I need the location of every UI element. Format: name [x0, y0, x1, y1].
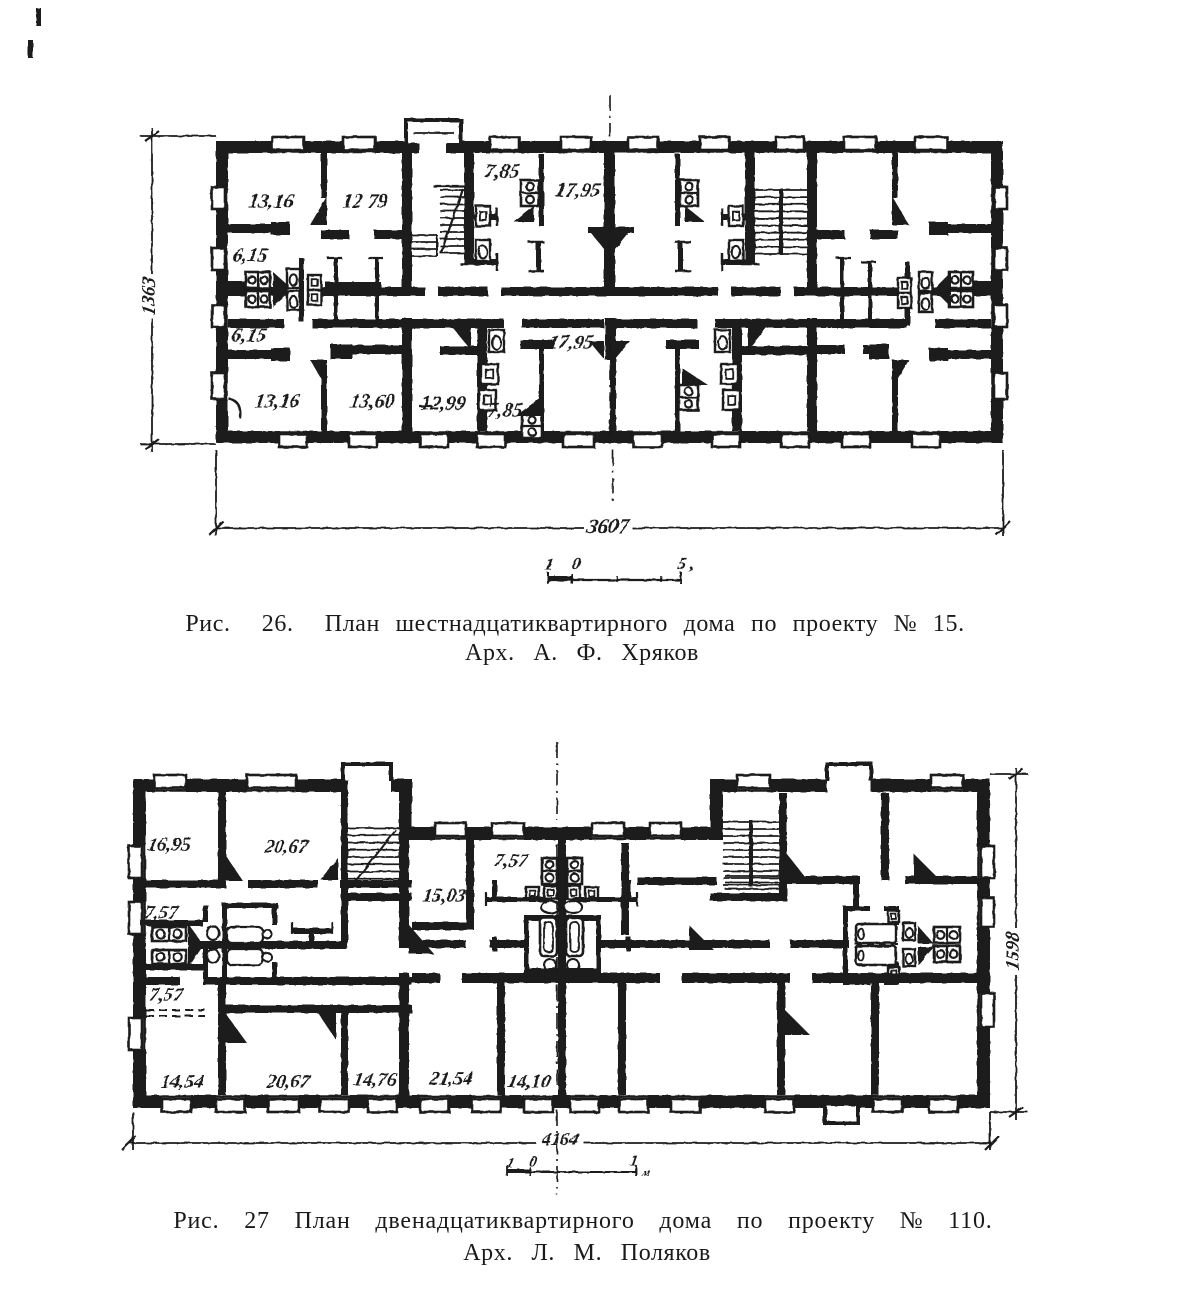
svg-text:21,54: 21,54 [427, 1068, 474, 1089]
svg-text:1: 1 [543, 555, 555, 574]
svg-text:0: 0 [570, 554, 582, 573]
svg-text:6,15: 6,15 [230, 325, 269, 347]
svg-text:14,10: 14,10 [506, 1071, 553, 1092]
svg-text:13,60: 13,60 [348, 391, 397, 413]
svg-text:м: м [640, 1165, 652, 1179]
svg-text:0: 0 [528, 1155, 539, 1171]
svg-text:15,03: 15,03 [421, 885, 468, 906]
svg-text:20,67: 20,67 [262, 836, 311, 857]
svg-text:12 79: 12 79 [341, 191, 390, 213]
svg-text:12,99: 12,99 [419, 393, 468, 415]
svg-text:14,54: 14,54 [159, 1071, 205, 1092]
svg-text:17,95: 17,95 [554, 180, 603, 202]
svg-text:14,76: 14,76 [352, 1069, 399, 1090]
svg-text:1: 1 [629, 1154, 639, 1170]
svg-text:1598: 1598 [1002, 930, 1023, 972]
svg-text:17,95: 17,95 [547, 332, 596, 354]
svg-text:13,16: 13,16 [253, 391, 303, 413]
svg-text:7,85: 7,85 [486, 400, 525, 422]
svg-text:20,67: 20,67 [264, 1071, 313, 1092]
svg-text:13,16: 13,16 [247, 191, 297, 213]
svg-text:16,95: 16,95 [146, 834, 193, 855]
svg-text:5 ,: 5 , [676, 554, 696, 573]
svg-text:7,57: 7,57 [143, 902, 181, 923]
svg-text:7,57: 7,57 [493, 850, 531, 871]
svg-text:3607: 3607 [584, 514, 633, 538]
svg-text:4164: 4164 [540, 1129, 580, 1149]
svg-text:7,57: 7,57 [148, 984, 186, 1005]
svg-text:7,85: 7,85 [483, 161, 522, 183]
svg-text:1363: 1363 [138, 275, 159, 317]
svg-text:6,15: 6,15 [231, 245, 270, 267]
